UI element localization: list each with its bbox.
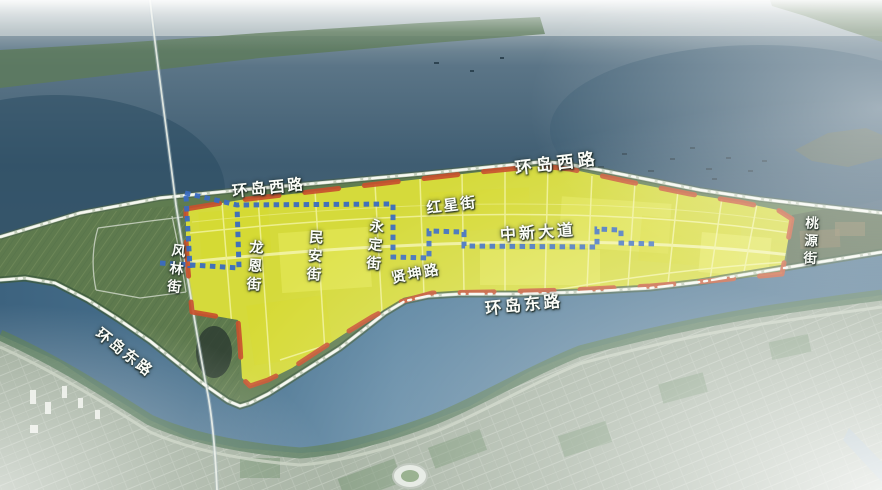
label-taoyuan-street: 桃源街 <box>801 215 818 268</box>
planning-map-screenshot: 环岛西路 环岛西路 红星街 中新大道 贤坤路 环岛东路 环岛东路 风林街 龙恩街… <box>0 0 882 490</box>
label-longen-street: 龙恩街 <box>243 239 262 295</box>
label-minan-street: 民安街 <box>303 229 322 285</box>
haze-overlays <box>0 0 882 490</box>
map-canvas <box>0 0 882 490</box>
